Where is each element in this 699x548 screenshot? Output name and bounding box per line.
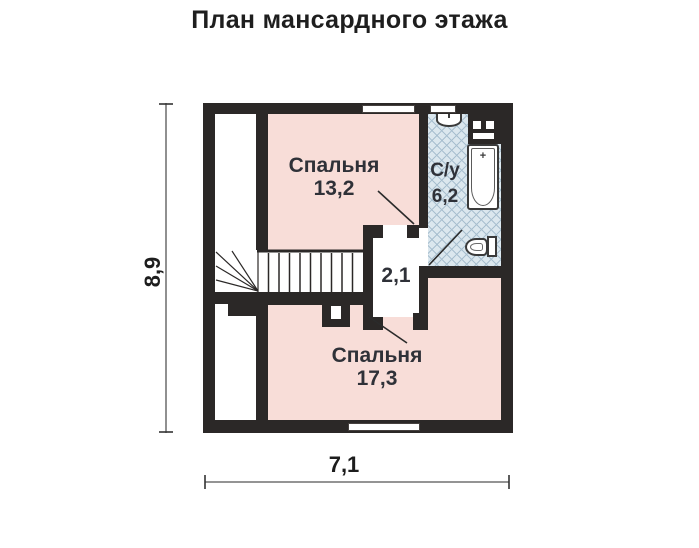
staircase [215,250,363,292]
bathroom-name: С/у [420,158,470,184]
toilet-bowl-icon [465,238,488,256]
wall-stub [363,225,383,238]
vent-duct-icon [473,121,481,129]
bedroom-top-name: Спальня [264,154,404,177]
vent-shaft-icon [468,114,501,144]
height-dimension-label: 8,9 [133,252,173,292]
wall-stub [228,304,268,316]
bedroom-top-label: Спальня 13,2 [264,154,404,200]
floor-plan-page: План мансардного этажа [0,0,699,548]
bathroom-area: 6,2 [420,184,470,210]
toilet-icon [487,236,497,257]
room-bedroom-top-ext [268,225,363,250]
vent-duct-icon [486,121,494,129]
bedroom-bottom-name: Спальня [306,344,448,367]
bedroom-top-area: 13,2 [264,177,404,200]
window-icon [362,105,415,113]
window-icon [430,105,456,113]
bedroom-bottom-area: 17,3 [306,367,448,390]
bathroom-label: С/у 6,2 [420,158,470,210]
width-dimension-label: 7,1 [304,452,384,478]
vent-duct-icon [473,133,494,139]
chimney-flue [331,306,341,319]
hall-area: 2,1 [371,264,421,287]
bathtub-icon [467,144,499,210]
wall-stub [413,313,428,326]
window-icon [348,423,420,431]
bathroom-door-opening [419,228,428,266]
room-bedroom-bottom-ext [428,278,501,330]
hall-label: 2,1 [371,264,421,287]
side-space-bottom [215,304,256,420]
page-title: План мансардного этажа [0,6,699,35]
wall-stub [363,317,383,330]
room-bedroom-bottom-ext [383,317,413,330]
bedroom-bottom-label: Спальня 17,3 [306,344,448,390]
side-space-top [215,114,256,250]
